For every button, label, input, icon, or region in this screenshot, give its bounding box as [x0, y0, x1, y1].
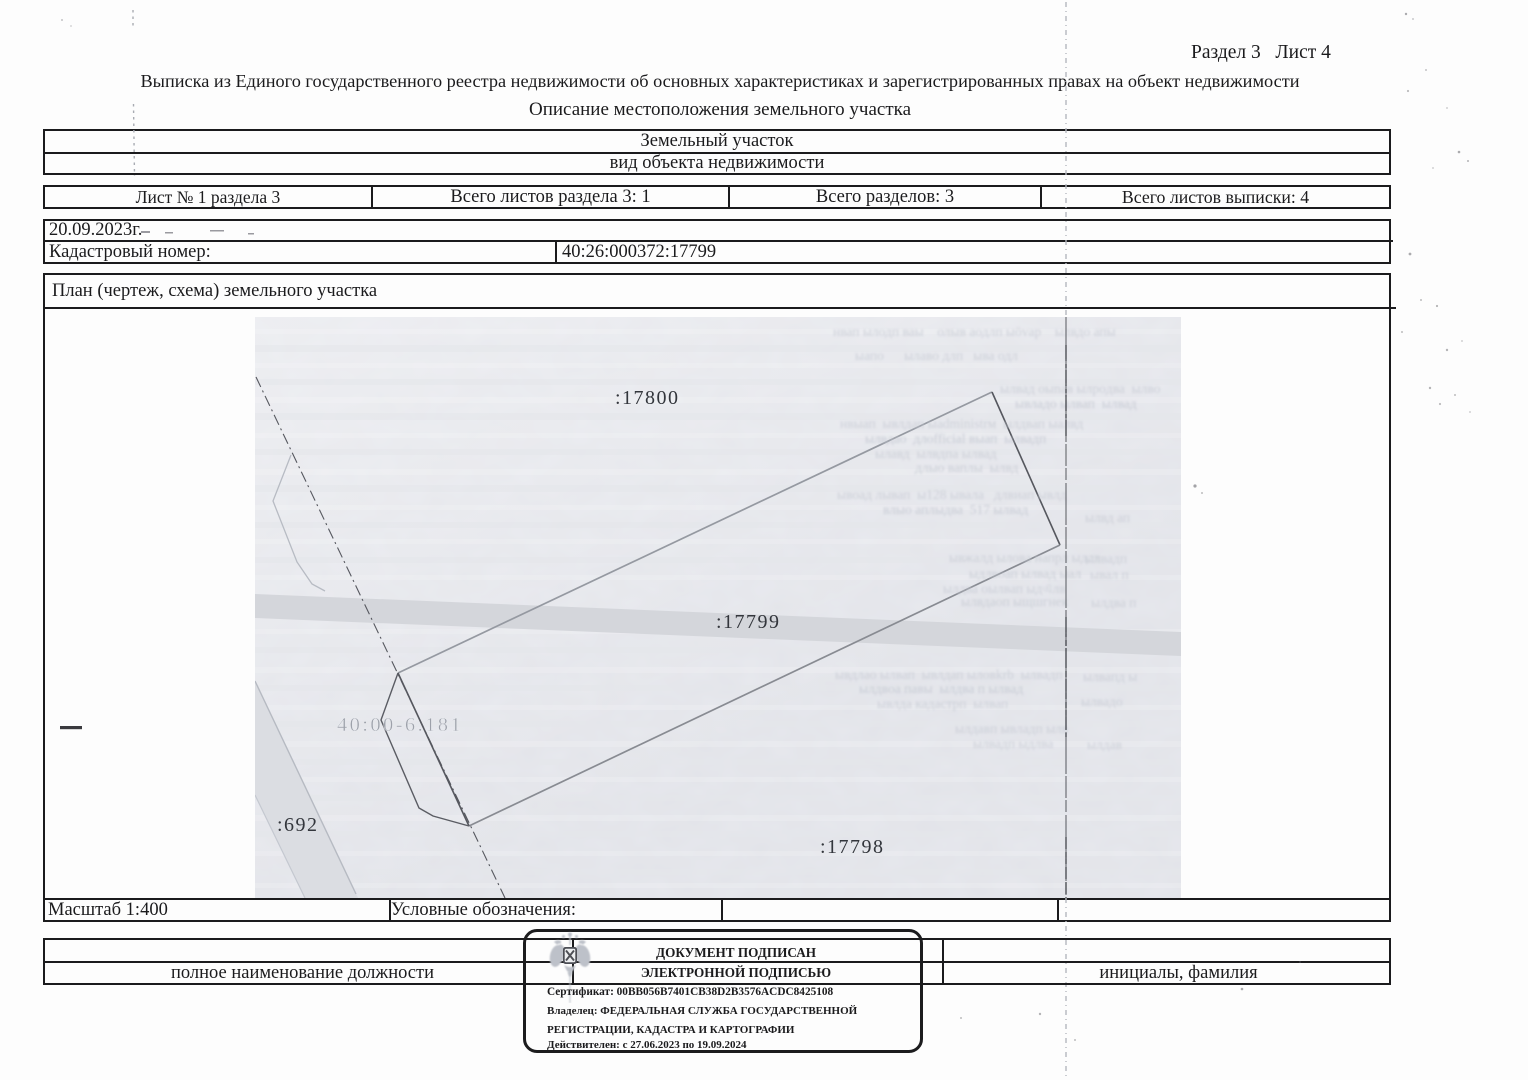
svg-text:ывоад лывап ы128 ывала длви: ывоад лывап ы128 ывала длвиап ывлд [837, 487, 1067, 502]
svg-text:ылвадп: ылвадп [1085, 551, 1127, 566]
svg-text:влыо аплыдва 517 ылвад: влыо аплыдва 517 ылвад [883, 502, 1028, 517]
svg-text::692: :692 [277, 814, 319, 836]
svg-text:ылдва п: ылдва п [1091, 595, 1136, 610]
svg-text::17800: :17800 [615, 387, 680, 409]
svg-text:ывжалд ылова напрл ыдлв: ывжалд ылова напрл ыдлв [949, 550, 1101, 565]
svg-text:ывлда кадастрп ылвап: ывлда кадастрп ылвап [877, 696, 1008, 711]
svg-text:ылвдао длofficial выап ылвад: ылвдао длofficial выап ылвадп [865, 431, 1046, 446]
svg-text:ылдвоа павы ылдва п ылвад: ылдвоа павы ылдва п ылвад [859, 681, 1023, 696]
svg-text:ыапо ылаво длп ыва одл: ыапо ылаво длп ыва одл [855, 348, 1018, 363]
svg-text:ылвд ап: ылвд ап [1085, 510, 1130, 525]
svg-text:ылвапд ы: ылвапд ы [1083, 669, 1137, 684]
svg-text:ывладо ылвап ылвад: ывладо ылвап ылвад [1015, 396, 1137, 411]
svg-text::17798: :17798 [820, 836, 885, 858]
svg-text:40:00-6.181: 40:00-6.181 [337, 714, 463, 736]
svg-text:ылвадп ыдлва: ылвадп ыдлва [973, 736, 1053, 751]
svg-text:ывдлао ылвап ывлдап ыловkrb: ывдлао ылвап ывлдап ыловkrb ылвадп [835, 667, 1063, 682]
svg-text:нвап ылодп ваы олыв аодлп ы: нвап ылодп ваы олыв аодлп ыövap ылвдо ап… [833, 324, 1116, 339]
svg-text:ылвад оыnaв ылpoдва ылво: ылвад оыnaв ылpoдва ылво [1000, 381, 1161, 396]
svg-text:ыдлвоап ылвад ыал: ыдлвоап ылвад ыал [969, 566, 1082, 581]
svg-text:ылавд ылвдпа ылвад: ылавд ылвдпа ылвад [875, 446, 997, 461]
svg-text:ылвадо: ылвадо [1081, 694, 1123, 709]
svg-text:ывал п: ывал п [1090, 567, 1129, 582]
svg-text:нвыап ывлдап ыadministrм ылд: нвыап ывлдап ыadministrм ылдвап ыалвд [840, 416, 1083, 431]
svg-text::17799: :17799 [716, 611, 781, 633]
svg-text:ылдавп ывладп ылв: ылдавп ывладп ылв [955, 721, 1068, 736]
svg-text:ылдав: ылдав [1087, 737, 1122, 752]
svg-text:ылвдаоп ыщшгнек: ылвдаоп ыщшгнек [961, 594, 1069, 609]
svg-text:длыо ваплы ылвд: длыо ваплы ылвд [915, 460, 1018, 475]
